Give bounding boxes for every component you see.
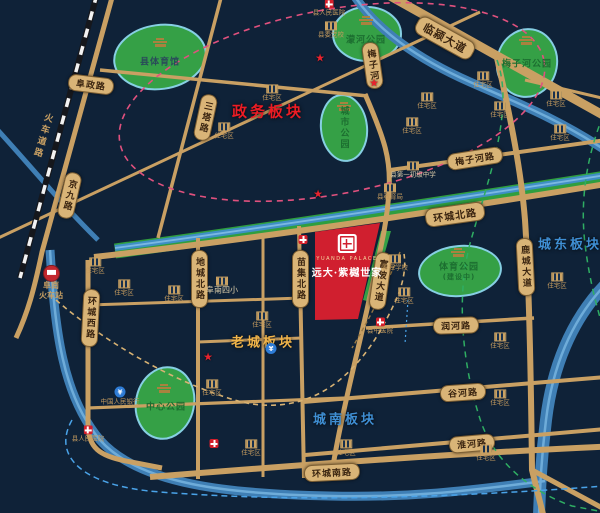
district-label-laocheng: 老城板块 [231,332,295,351]
building-icon [494,389,506,398]
poi-government: ★ [315,54,325,65]
project-label-group: YUANDA PALACE 远大·紫樾世家 [312,236,382,279]
poi-government: ★ [203,353,213,364]
poi-bank: ¥ [266,343,277,355]
building-icon [406,117,418,126]
building-icon [421,92,433,101]
bank-icon: ¥ [115,386,126,397]
park-label-zhongxin: 中心公园 [146,400,186,413]
project-name-cn: 远大·紫樾世家 [312,264,382,279]
poi-residential: 住宅区 [114,279,134,296]
building-icon [550,90,562,99]
building-icon [340,439,352,448]
building-icon [325,21,337,30]
building-icon [89,257,101,266]
train-station: 阜南 火车站 [39,266,63,300]
poi-residential: 住宅区 [473,71,493,88]
building-icon [494,332,506,341]
pavilion-icon [451,248,465,257]
project-name-en: YUANDA PALACE [316,256,377,262]
poi-school: 县委党校 [318,21,344,38]
hospital-cross-icon [325,0,334,8]
poi-residential: 住宅区 [252,311,272,328]
pavilion-icon [519,36,533,45]
district-label-chengdong: 城东板块 [538,234,600,253]
project-seal-icon [339,236,354,251]
poi-school: 县教育局 [377,183,403,200]
building-icon [266,84,278,93]
building-icon [216,277,228,286]
poi-residential: 住宅区 [241,439,261,456]
star-icon: ★ [203,353,213,363]
building-icon [218,122,230,131]
poi-residential: 住宅区 [214,122,234,139]
star-icon: ★ [315,54,325,64]
poi-residential: 住宅区 [476,444,496,461]
poi-residential: 住宅区 [336,439,356,456]
building-icon [245,439,257,448]
poi-government: ★ [369,79,379,90]
hospital-cross-icon [299,235,308,244]
poi-bank: ¥中国人民银行 [101,386,140,405]
poi-school: 阜南四小 [206,277,238,296]
poi-school: 县第一初级中学 [385,161,441,178]
building-icon [554,124,566,133]
district-label-chengnan: 城南板块 [313,409,377,428]
pavilion-icon [153,38,167,47]
poi-hospital: 县人民医院 [313,0,346,17]
poi-residential: 住宅区 [547,272,567,289]
road-label-miaoji: 苗集北路 [292,250,309,308]
road-label-guhe: 谷河路 [439,382,486,402]
poi-residential: 住宅区 [546,90,566,107]
bank-icon: ¥ [266,343,277,354]
park-label-menghe: 濛河公园 [346,33,386,46]
hospital-cross-icon [210,439,219,448]
poi-hospital [299,235,308,245]
building-icon [256,311,268,320]
park-label-chengshi: 城市公园 [338,106,351,150]
poi-government: ★ [313,190,323,201]
building-icon [118,279,130,288]
park-label-tiyu-status: (建设中) [443,272,475,282]
station-name-line1: 阜南 [43,281,59,291]
poi-residential: 住宅区 [85,257,105,274]
building-icon [206,379,218,388]
road-label-huanchengxi: 环城西路 [80,289,100,348]
poi-residential: 住宅区 [417,92,437,109]
building-icon [480,444,492,453]
poi-school: 春晖学校 [382,254,408,271]
poi-residential: 住宅区 [490,332,510,349]
poi-residential: 住宅区 [490,389,510,406]
road-label-runhe: 润河路 [433,316,480,335]
poi-hospital: 县中医院 [367,317,393,334]
building-icon [494,101,506,110]
poi-hospital [210,439,219,449]
location-map: 火车道路 阜政路 临颍大道 三塔路 京九路 环城西路 地城北路 苗集北路 富陂大… [0,0,600,513]
hospital-cross-icon [376,317,385,326]
poi-residential: 住宅区 [262,84,282,101]
star-icon: ★ [313,190,323,200]
district-label-zhengwu: 政务板块 [232,101,304,122]
station-name-line2: 火车站 [39,291,63,301]
hospital-cross-icon [84,425,93,434]
train-station-icon [44,266,59,281]
poi-residential: 住宅区 [164,285,184,302]
star-icon: ★ [369,79,379,89]
building-icon [168,285,180,294]
building-icon [398,287,410,296]
pavilion-icon [157,384,171,393]
road-label-huanchengnan: 环城南路 [304,463,361,483]
poi-hospital: 县人民医院 [72,425,105,442]
park-label-meizihe: 梅子河公园 [502,57,552,70]
poi-residential: 住宅区 [202,379,222,396]
building-icon [407,161,419,170]
poi-residential: 住宅区 [402,117,422,134]
building-icon [389,254,401,263]
poi-residential: 住宅区 [394,287,414,304]
pavilion-icon [359,16,373,25]
park-label-tiyu: 体育公园 [439,260,479,273]
poi-residential: 住宅区 [550,124,570,141]
building-icon [551,272,563,281]
poi-residential: 住宅区 [490,101,510,118]
road-label-lucheng: 鹿城大道 [515,238,535,297]
park-label-tiyuguan: 县体育馆 [140,55,180,68]
building-icon [477,71,489,80]
building-icon [384,183,396,192]
